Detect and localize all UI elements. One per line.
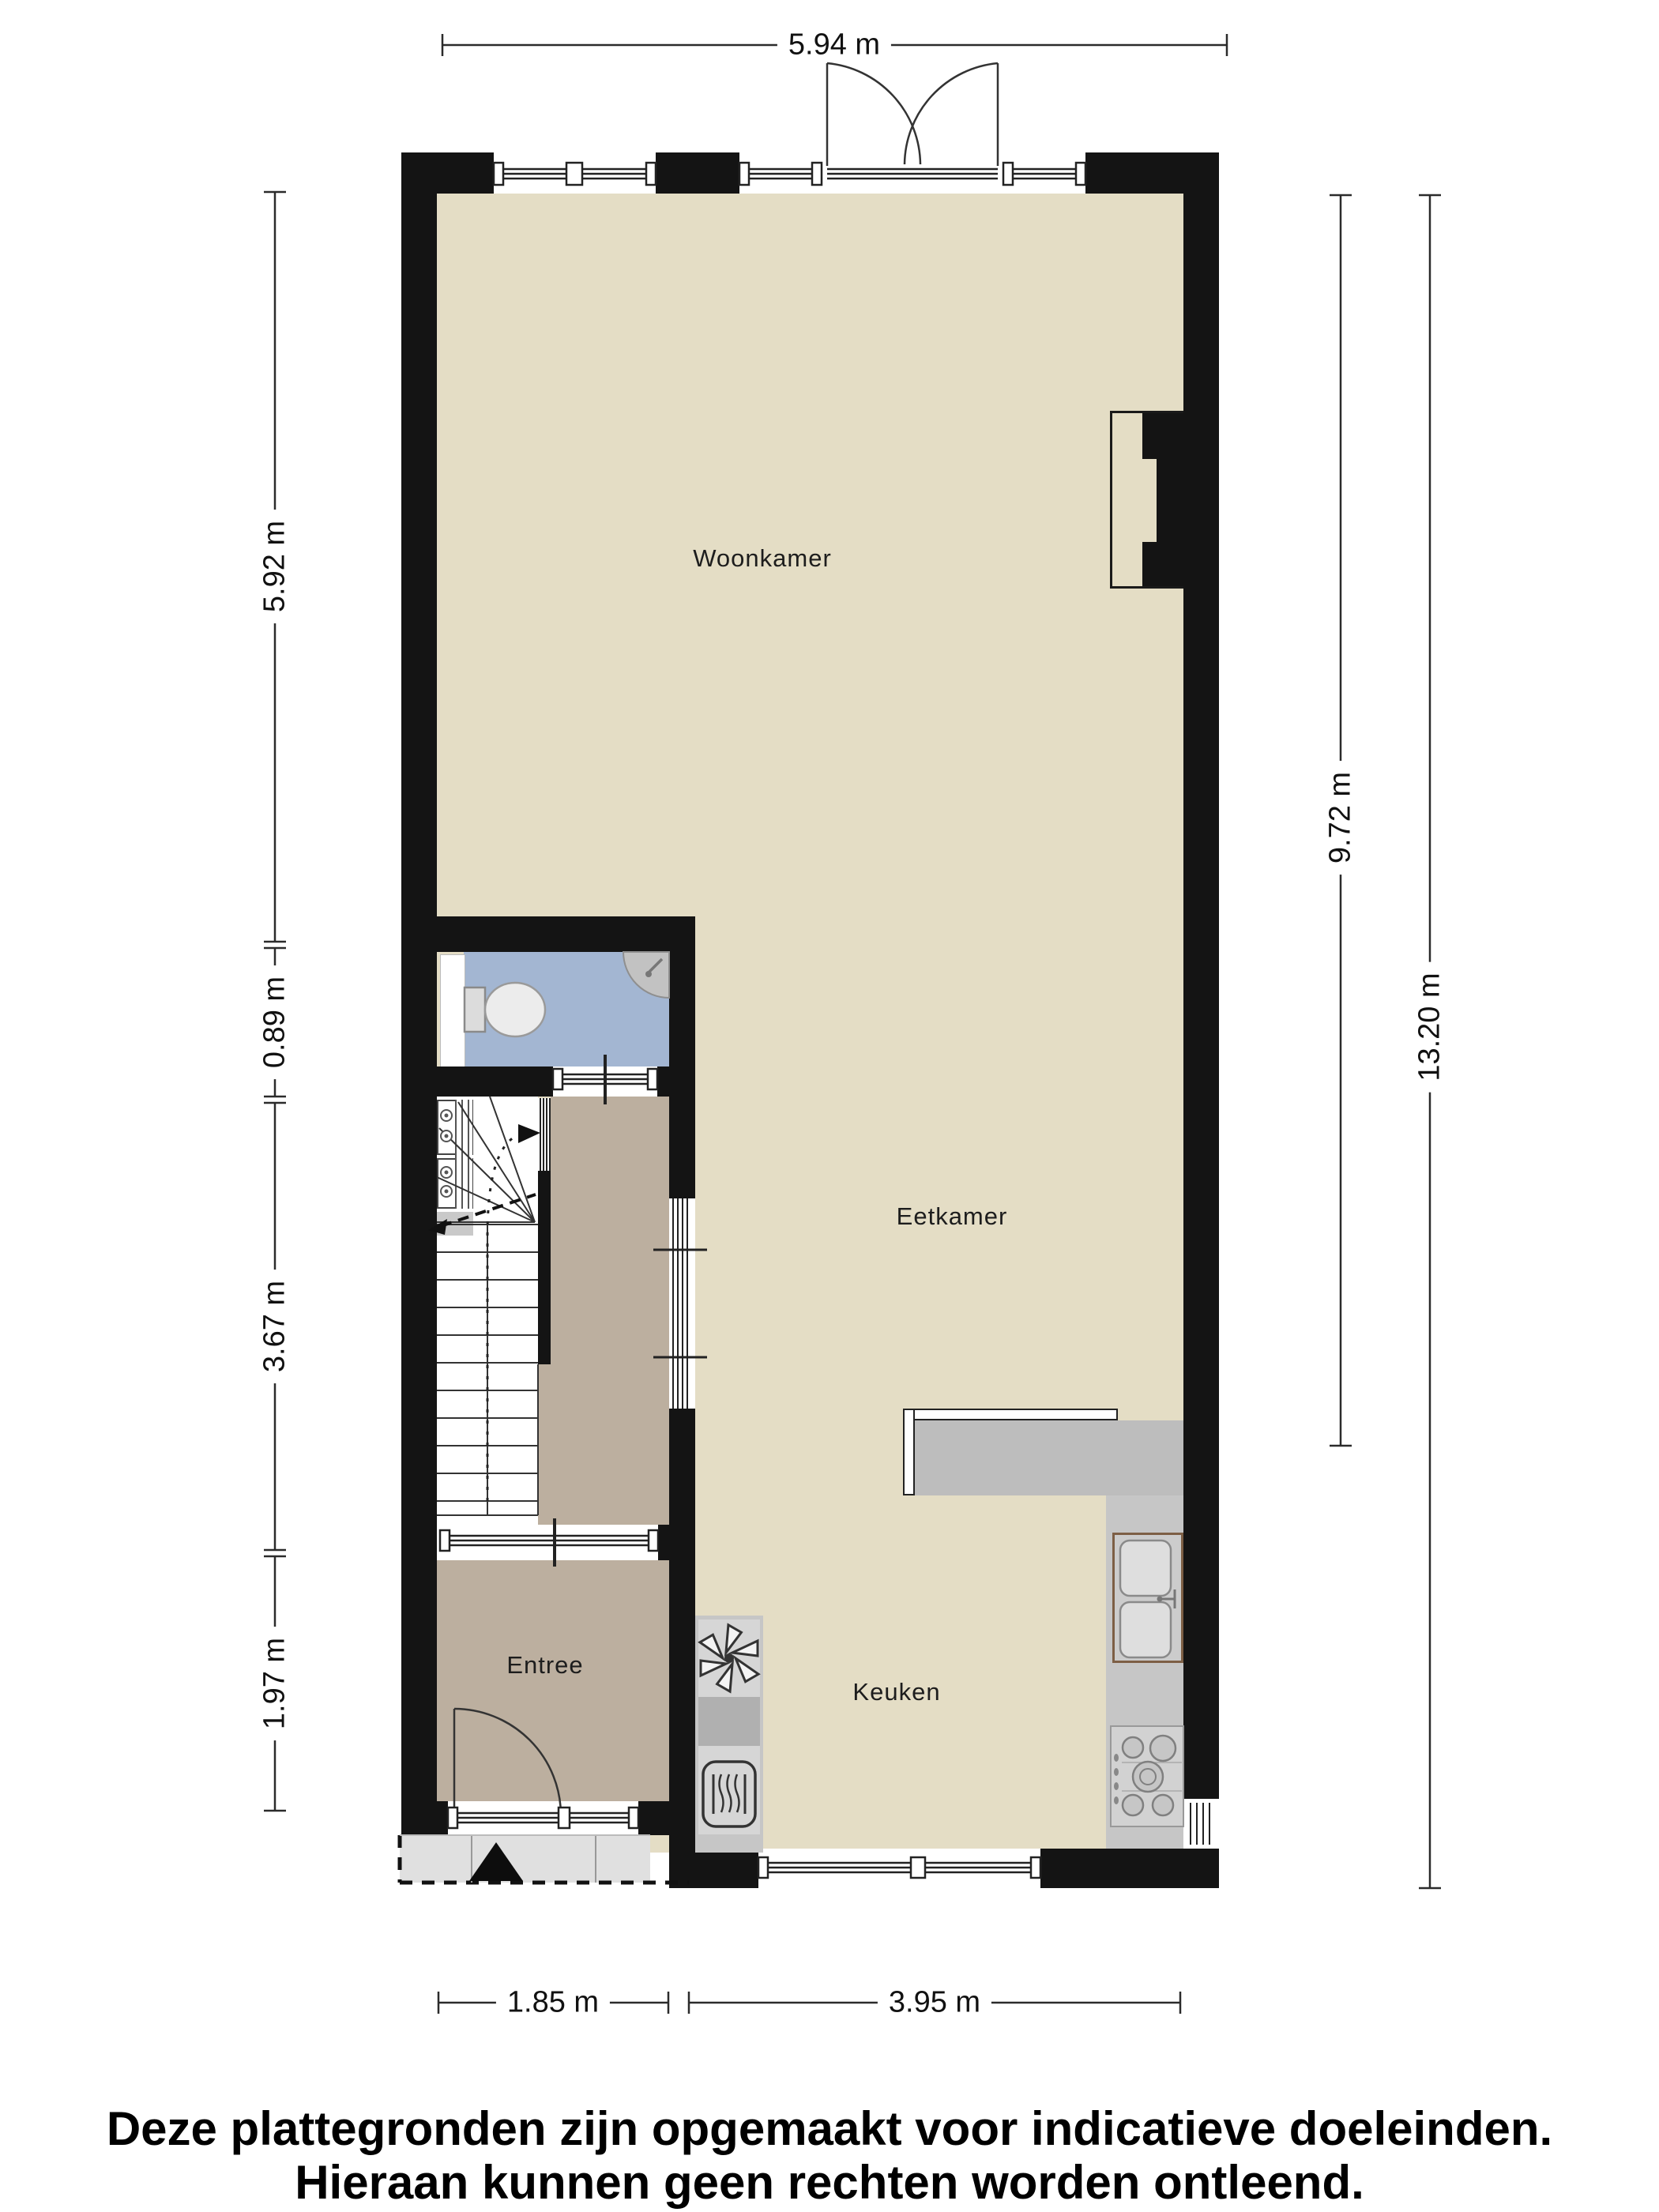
toilet-door-glazing-band <box>553 1066 657 1097</box>
floorplan-page: Woonkamer Eetkamer Keuken Entree 5.94 m … <box>0 0 1659 2212</box>
appliance-fan-box <box>698 1619 760 1697</box>
floor-porch <box>400 1835 650 1883</box>
wall-niche <box>1110 411 1183 589</box>
wall-entree-top-pier <box>658 1525 669 1560</box>
wall-toilet-bottom-left <box>437 1066 553 1097</box>
dim-left-3: 3.67 m <box>258 1270 292 1383</box>
wall-entree-bottom-right <box>638 1801 669 1835</box>
garden-door-opening <box>822 152 1003 194</box>
room-label-eetkamer: Eetkamer <box>897 1202 1008 1231</box>
room-label-entree: Entree <box>506 1651 583 1680</box>
wall-bottom-right <box>1040 1849 1219 1888</box>
disclaimer-line-2: Hieraan kunnen geen rechten worden ontle… <box>0 2155 1659 2210</box>
wall-toilet-bottom-right <box>657 1066 669 1097</box>
dim-right-inner: 9.72 m <box>1324 761 1358 875</box>
glass-partition-hall-dining <box>669 1198 695 1409</box>
wall-hall-dining-lower <box>669 1409 695 1525</box>
window-top-3 <box>1003 152 1085 194</box>
dim-left-4: 1.97 m <box>258 1627 292 1740</box>
dim-left-1: 5.92 m <box>258 510 292 623</box>
wall-left <box>401 152 437 1835</box>
wall-entree-bottom-left <box>401 1801 448 1835</box>
wall-entree-kitchen <box>669 1525 695 1888</box>
floor-entree <box>437 1560 669 1801</box>
stair-glass-panel <box>538 1098 551 1171</box>
room-label-woonkamer: Woonkamer <box>693 544 832 573</box>
floor-hall-understair <box>538 1364 551 1525</box>
floor-toilet <box>464 952 669 1068</box>
wall-toilet-top <box>437 916 695 952</box>
kitchen-bar-top <box>903 1409 1118 1420</box>
niche-step-top <box>1142 413 1186 459</box>
floor-hall <box>551 1097 669 1525</box>
meter-cupboard-shelf <box>437 1212 473 1236</box>
wall-stair-right <box>538 1171 551 1364</box>
niche-step-bottom <box>1142 542 1186 586</box>
kitchen-counter-top <box>915 1420 1183 1495</box>
wall-toilet-right <box>669 952 695 1198</box>
dim-bottom-1: 1.85 m <box>496 1986 610 2020</box>
dim-left-2: 0.89 m <box>258 965 292 1079</box>
window-entree-hall <box>437 1525 658 1560</box>
dim-right-outer: 13.20 m <box>1413 961 1447 1092</box>
room-label-keuken: Keuken <box>852 1678 940 1706</box>
dim-top: 5.94 m <box>777 28 891 62</box>
appliance-oven-box <box>698 1746 760 1834</box>
toilet-duct <box>440 954 465 1068</box>
kitchen-sink-unit <box>1112 1533 1183 1663</box>
meter-cupboard-icon <box>455 1100 472 1209</box>
window-kitchen-bottom <box>758 1849 1040 1888</box>
kitchen-bar-cap <box>903 1409 915 1495</box>
wall-top-mid <box>656 152 739 194</box>
wall-right <box>1183 152 1219 1799</box>
front-door-opening <box>448 1801 638 1835</box>
window-top-1 <box>494 152 656 194</box>
dim-bottom-2: 3.95 m <box>878 1986 991 2020</box>
niche-step-mid <box>1157 459 1186 542</box>
disclaimer-line-1: Deze plattegronden zijn opgemaakt voor i… <box>0 2101 1659 2156</box>
double-door <box>827 63 998 166</box>
window-right-small <box>1183 1799 1219 1849</box>
appliance-mid-strip <box>698 1697 760 1746</box>
window-top-2 <box>739 152 822 194</box>
